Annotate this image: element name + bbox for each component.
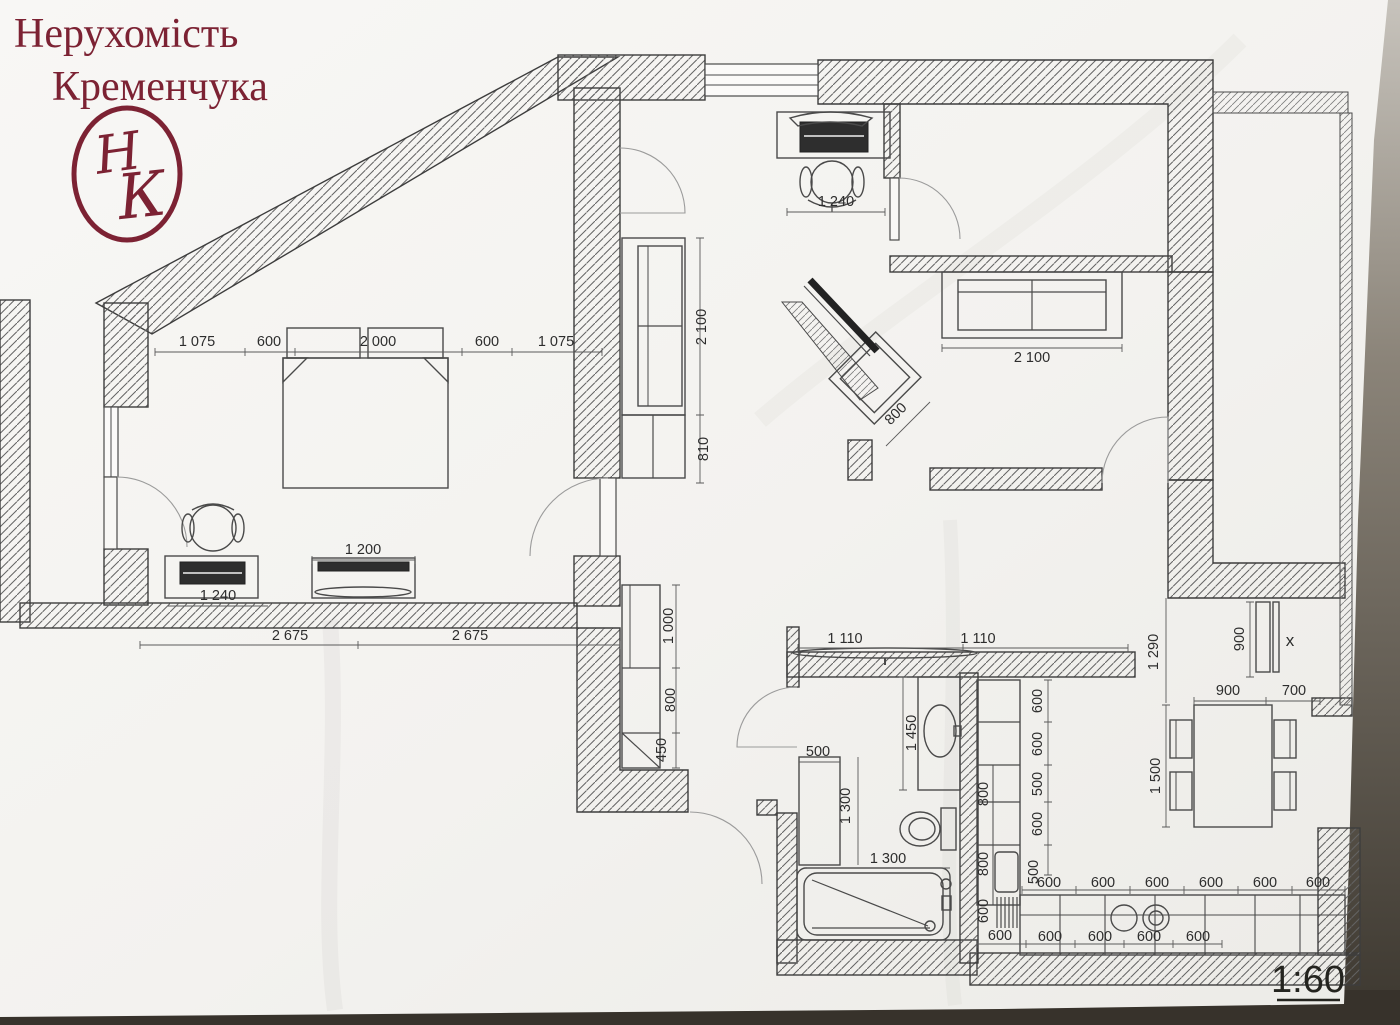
dim-label: 600 [1037,875,1061,891]
wall-living-bottom [930,468,1102,490]
logo-monogram-k: К [113,156,171,234]
dim-label: 1 000 [661,608,677,644]
wall-bedroom-left-lower [104,549,148,605]
dim-label: 600 [257,334,281,350]
dim-label: 1 500 [1148,758,1164,794]
dim-label: 600 [1186,929,1210,945]
dim-label: 500 [806,744,830,760]
wall-hall-left-lower [574,556,620,606]
dim-label: 900 [1216,683,1240,699]
logo-line2: Кременчука [52,64,268,110]
dim-label: 600 [1038,929,1062,945]
dim-label: 1 110 [960,631,995,647]
door-leaf-bedroom [600,478,616,556]
wall-diag-door-stub [848,440,872,480]
dim-label: 600 [976,899,992,923]
dim-label: 1 075 [538,334,574,350]
dim-label: 2 100 [694,309,710,345]
dim-label: 1 110 [827,631,862,647]
dim-label: 2 100 [1014,350,1050,366]
dim-label: 2 000 [360,334,396,350]
dim-label: 500 [1030,772,1046,796]
dim-label: 600 [1030,689,1046,713]
wall-bath-bottom [777,940,977,975]
dim-label: 900 [1232,627,1248,651]
dim-label: 600 [1030,812,1046,836]
wall-nook-partition [884,104,900,178]
wall-outer-left [0,300,30,622]
logo-line1: Нерухомість [14,11,238,57]
dim-label: 1 200 [345,542,381,558]
dim-label: 1 300 [838,788,854,824]
wall-room2-bottom [890,256,1172,272]
door-leaf-balcony-bedroom [104,477,117,549]
dim-label: 600 [1199,875,1223,891]
wall-hall-left-upper [574,88,620,478]
wall-living-right [1168,272,1213,480]
dim-label: 450 [654,738,670,762]
wall-balcony-top [1213,92,1348,113]
dim-label: 700 [1282,683,1306,699]
dim-label: 2 675 [272,628,308,644]
dim-label: 1 240 [200,588,236,604]
paper-wrinkle [329,620,335,1010]
scale-label: 1:60 [1271,959,1345,1001]
dim-label: 600 [1030,732,1046,756]
wall-bedroom-bottom [20,603,577,628]
wall-bedroom-left-upper [104,303,148,407]
wall-kitchen-right-stub2 [1318,828,1360,955]
dim-label: 600 [1137,929,1161,945]
dim-label: 800 [976,782,992,806]
wall-entry-stub [757,800,777,815]
dim-label: 810 [696,437,712,461]
dim-label: 1 075 [179,334,215,350]
dim-label-x: x [1286,631,1295,650]
dim-label: 1 450 [904,715,920,751]
dim-label: 600 [475,334,499,350]
dim-label: 800 [663,688,679,712]
dim-label: 2 675 [452,628,488,644]
dim-label: 800 [976,852,992,876]
dim-label: 600 [1145,875,1169,891]
scale-indicator: 1:60 [1271,959,1345,1001]
dim-label: 600 [1091,875,1115,891]
window-top [705,64,818,96]
dim-label: 600 [988,928,1012,944]
floorplan-photo: Нерухомість Кременчука Н К [0,0,1400,1025]
dim-label: 600 [1253,875,1277,891]
dim-label: 1 290 [1146,634,1162,670]
wall-balcony-right [1340,113,1352,705]
dim-label: 1 240 [818,194,854,210]
door-leaf-room2 [890,178,899,240]
dim-label: 1 300 [870,851,906,867]
dim-label: 600 [1088,929,1112,945]
dim-label: 600 [1306,875,1330,891]
